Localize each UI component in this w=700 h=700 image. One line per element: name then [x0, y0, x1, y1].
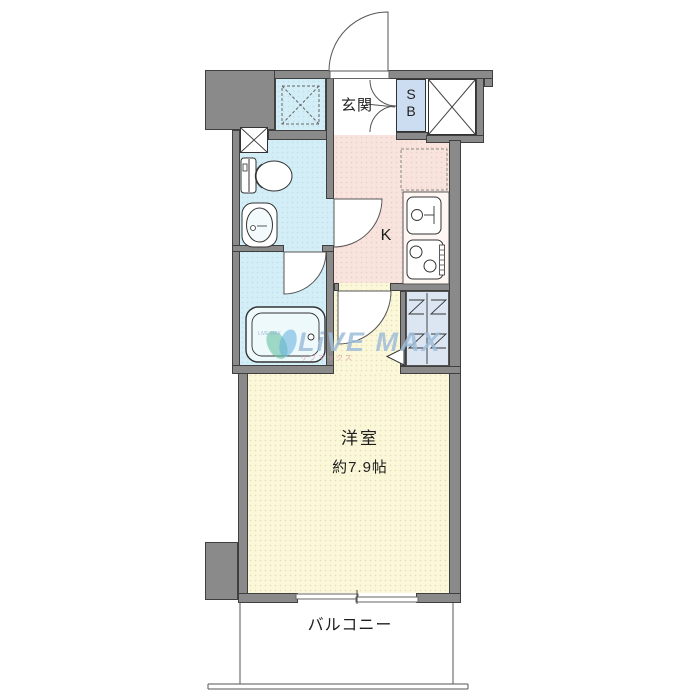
pipe-space-x-icon [241, 128, 267, 152]
balcony-label: バルコニー [280, 617, 420, 635]
entrance-door-arc [329, 12, 388, 71]
kitchen-label: K [377, 227, 395, 245]
washbasin-icon [242, 203, 277, 247]
refrigerator-space-icon [401, 149, 447, 190]
room-name-label: 洋室 [290, 430, 430, 449]
closet-door-triangle-icon [387, 348, 404, 365]
balcony-window [296, 590, 418, 604]
toilet-icon [241, 158, 292, 193]
bathroom-door-arc [284, 252, 326, 294]
bathtub-icon [246, 307, 325, 362]
shoe-box-label-s: S [403, 87, 419, 102]
washroom-door-arc [334, 199, 382, 247]
kitchen-sink-icon [407, 197, 441, 234]
room-size-label: 約7.9帖 [290, 460, 430, 477]
washing-machine-icon [282, 86, 319, 124]
living-room-door-arc [338, 291, 391, 344]
entrance-threshold [330, 71, 389, 79]
genkan-label: 玄関 [332, 98, 382, 115]
closet-hanger-icon [409, 293, 446, 364]
shoe-box-label-b: B [403, 104, 419, 119]
balcony-outline [208, 603, 468, 689]
stove-icon [407, 240, 445, 279]
floor-plan: 玄関 S B K 洋室 約7.9帖 バルコニー LiVE MAX LiVE MA… [0, 0, 700, 700]
elevator-x-icon [429, 80, 475, 134]
